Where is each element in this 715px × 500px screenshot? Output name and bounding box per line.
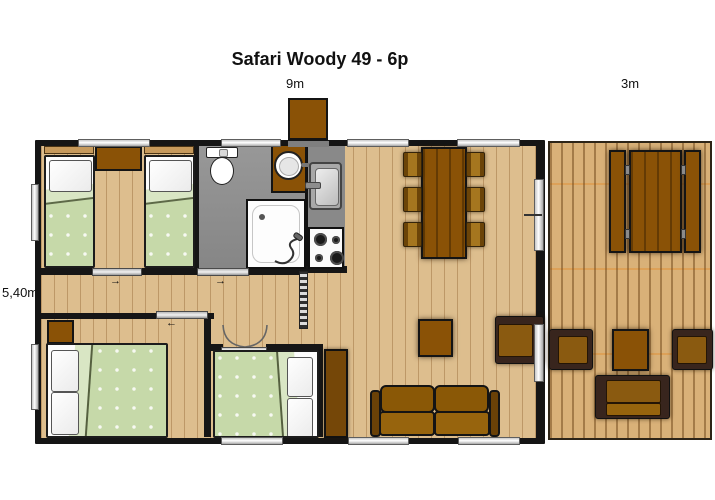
shower-drain (259, 214, 265, 220)
window-bottom-living-2 (458, 437, 520, 445)
bedroom2-pillow-2 (287, 398, 313, 438)
terrace-side-table (612, 329, 649, 371)
window-top-dining-2 (457, 139, 520, 147)
bedroom2-double-bed (213, 350, 319, 438)
bedroom2-pillow-1 (287, 357, 313, 397)
dining-chair-r1 (466, 152, 485, 177)
dining-chair-r2 (466, 187, 485, 212)
corridor-top-wall-b (142, 268, 197, 275)
entrance-step (288, 98, 328, 140)
dining-chair-l1 (403, 152, 422, 177)
sofa-back-left (380, 385, 435, 413)
twin-bed-right-pillow (149, 160, 192, 192)
picnic-bench-left (609, 150, 626, 253)
accordion-partition (299, 271, 308, 329)
bedroom1-nightstand (47, 320, 74, 344)
terrace-armchair-left (549, 329, 593, 370)
kitchen-faucet (305, 182, 321, 189)
shower-hose-icon (272, 231, 304, 265)
basin-inner (279, 157, 299, 176)
terrace-bench-seat-cushion (606, 403, 661, 416)
bedroom1-door-arrow: ← (166, 318, 177, 328)
plan-title: Safari Woody 49 - 6p (160, 49, 480, 70)
stove (308, 227, 344, 269)
bedroom1-right-wall (204, 313, 211, 437)
bedroom1-sliding-door (156, 311, 208, 319)
bedroom2-french-doors-icon (221, 323, 269, 349)
entrance-door-opening (288, 141, 329, 147)
twin-bedroom-door-arrow: → (110, 276, 121, 286)
toilet-bowl (210, 157, 234, 185)
floorplan-canvas: Safari Woody 49 - 6p 9m 3m 5,40m (0, 0, 715, 500)
living-armchair-cushion (498, 324, 533, 357)
bedroom1-pillow-2 (51, 392, 79, 435)
terrace-door-lower (534, 324, 544, 382)
picnic-connector-1 (625, 165, 630, 175)
burner-large-br (330, 251, 344, 265)
terrace-bench (595, 375, 670, 419)
burner-small-bl (315, 254, 323, 262)
window-top-twin-bedroom (78, 139, 150, 147)
bathroom-door-arrow: → (215, 276, 226, 286)
window-bottom-bedroom2 (221, 437, 283, 445)
window-bottom-living-1 (348, 437, 409, 445)
building-width-label: 9m (273, 76, 317, 91)
sofa-seat-right (434, 411, 490, 436)
twin-bed-left (44, 155, 95, 268)
sofa-arm-right (489, 390, 500, 437)
bedroom1-pillow-1 (51, 350, 79, 392)
terrace-door-handle (524, 214, 542, 216)
sofa-seat-left (379, 411, 435, 436)
window-top-bathroom (221, 139, 281, 147)
twin-bed-left-pillow (49, 160, 92, 192)
picnic-connector-4 (681, 229, 686, 239)
picnic-bench-right (684, 150, 701, 253)
terrace-armchair-right-cushion (677, 336, 707, 364)
window-left-twin-bedroom (31, 184, 39, 241)
terrace-width-label: 3m (608, 76, 652, 91)
twin-bedroom-cabinet (95, 146, 142, 171)
twin-bed-left-headboard (44, 146, 94, 154)
corridor-top-wall-a (41, 268, 93, 275)
dining-chair-r3 (466, 222, 485, 247)
dining-chair-l2 (403, 187, 422, 212)
sofa (370, 385, 500, 438)
burner-large-tl (314, 233, 327, 246)
picnic-table (629, 150, 682, 253)
twin-bed-right-headboard (144, 146, 194, 154)
bedroom1-double-bed (46, 343, 168, 438)
dining-chair-l3 (403, 222, 422, 247)
window-left-bedroom1 (31, 344, 39, 410)
terrace-bench-back-cushion (606, 380, 661, 403)
window-top-dining-1 (347, 139, 409, 147)
shower-tray (246, 199, 306, 269)
toilet-flush-button (219, 149, 228, 157)
bedroom2-wardrobe (324, 349, 348, 438)
terrace-armchair-right (672, 329, 713, 370)
dining-table (421, 147, 467, 259)
terrace-armchair-left-cushion (558, 336, 588, 364)
sofa-back-right (434, 385, 489, 413)
picnic-connector-2 (625, 229, 630, 239)
corridor-top-wall-c (247, 268, 305, 275)
corridor-bottom-wall (41, 313, 157, 319)
picnic-connector-3 (681, 165, 686, 175)
coffee-table (418, 319, 453, 357)
twin-bed-right (144, 155, 195, 268)
burner-small-tr (332, 236, 340, 244)
